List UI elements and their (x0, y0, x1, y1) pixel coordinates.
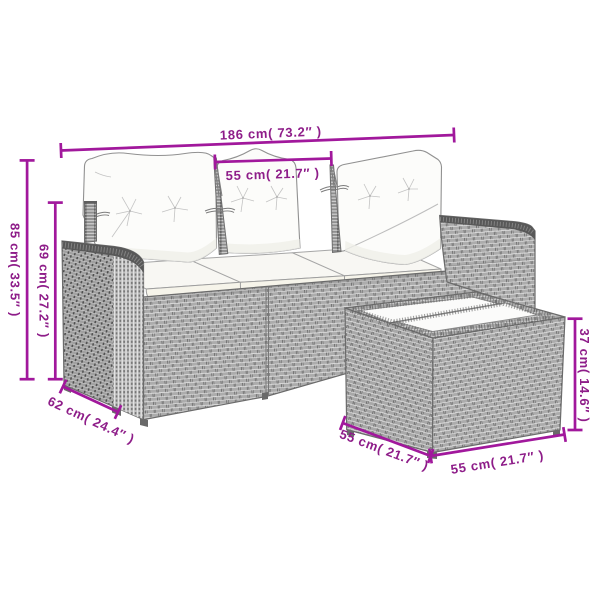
svg-text:55 cm( 21.7″ ): 55 cm( 21.7″ ) (225, 165, 320, 183)
svg-text:85 cm( 33.5″ ): 85 cm( 33.5″ ) (8, 223, 23, 317)
svg-text:37 cm( 14.6″ ): 37 cm( 14.6″ ) (577, 328, 592, 422)
svg-text:69 cm( 27.2″ ): 69 cm( 27.2″ ) (37, 244, 52, 338)
